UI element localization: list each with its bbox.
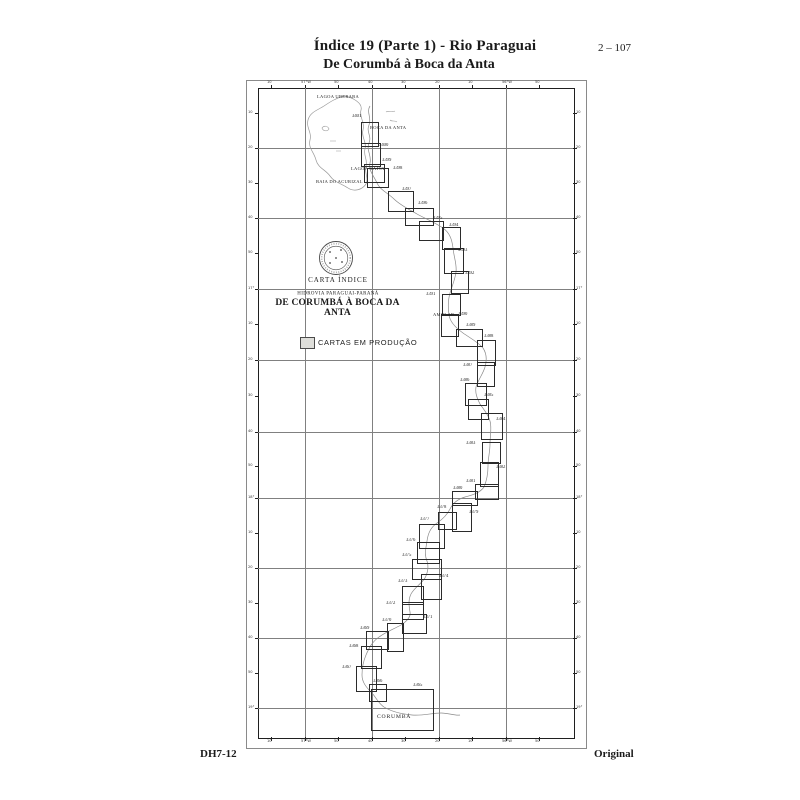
chart-number-3375: 3375 (402, 553, 411, 558)
lat-tickmark-left (255, 638, 259, 639)
lon-tickmark-top (338, 85, 339, 89)
lat-tick-label-left: 40 (248, 215, 253, 219)
lat-tick-label-right: 50 (576, 250, 581, 254)
lat-tickmark-left (255, 396, 259, 397)
chart-number-3373: 3373 (398, 579, 407, 584)
lat-tickmark-right (573, 360, 577, 361)
chart-number-3376: 3376 (406, 538, 415, 543)
lat-tick-label-left: 50 (248, 463, 253, 467)
lat-tickmark-right (573, 498, 577, 499)
lat-tickmark-left (255, 289, 259, 290)
chart-number-3384: 3384 (496, 417, 505, 422)
chart-number-3371: 3371 (423, 615, 432, 620)
lon-tickmark-top (372, 85, 373, 89)
chart-number-3369: 3369 (360, 626, 369, 631)
lat-tickmark-right (573, 396, 577, 397)
lat-tick-label-left: 17° (248, 286, 254, 290)
chart-number-3395: 3395 (433, 216, 442, 221)
lon-tick-label-top: 57°W (301, 80, 311, 84)
chart-number-3399: 3399 (382, 158, 391, 163)
map-index-subtitle1: HIDROVIA PARAGUAI-PARANÁ (290, 291, 387, 296)
lon-tickmark-bottom (372, 737, 373, 741)
chart-number-3383: 3383 (466, 441, 475, 446)
chart-number-3400: 3400 (379, 143, 388, 148)
chart-number-3367: 3367 (342, 665, 351, 670)
chart-number-3385: 3385 (484, 393, 493, 398)
place-label-boca-da-anta: BOCA DA ANTA (370, 126, 406, 131)
chart-number-3388: 3388 (484, 334, 493, 339)
lat-tick-label-left: 40 (248, 635, 253, 639)
graticule-parallel (258, 498, 573, 499)
lat-tickmark-right (573, 253, 577, 254)
chart-number-3397: 3397 (402, 187, 411, 192)
chart-number-3374: 3374 (439, 574, 448, 579)
chart-number-3401: 3401 (352, 114, 361, 119)
lon-tickmark-top (472, 85, 473, 89)
lat-tick-label-right: 50 (576, 670, 581, 674)
lat-tick-label-right: 30 (576, 600, 581, 604)
chart-box-3383 (482, 442, 501, 464)
graticule-meridian (506, 88, 507, 737)
chart-number-3394: 3394 (449, 223, 458, 228)
lat-tick-label-right: 18° (576, 495, 582, 499)
legend-production-swatch (300, 337, 315, 349)
lat-tick-label-left: 40 (248, 429, 253, 433)
lat-tickmark-right (573, 324, 577, 325)
lat-tick-label-left: 18° (248, 495, 254, 499)
lat-tick-label-right: 40 (576, 635, 581, 639)
lat-tickmark-left (255, 673, 259, 674)
lat-tick-label-left: 20 (248, 145, 253, 149)
place-label-corumba: CORUMBÁ (377, 714, 411, 720)
chart-number-3368: 3368 (349, 644, 358, 649)
lat-tick-label-right: 40 (576, 429, 581, 433)
chart-number-3389: 3389 (466, 323, 475, 328)
lon-tickmark-top (405, 85, 406, 89)
map-index-title: CARTA ÍNDICE (300, 276, 376, 284)
lat-tick-label-left: 20 (248, 565, 253, 569)
chart-number-3396: 3396 (418, 201, 427, 206)
lat-tickmark-right (573, 603, 577, 604)
lat-tick-label-left: 30 (248, 600, 253, 604)
lat-tickmark-left (255, 183, 259, 184)
lat-tickmark-left (255, 498, 259, 499)
chart-index-page: Índice 19 (Parte 1) - Rio Paraguai De Co… (0, 0, 800, 800)
lat-tick-label-right: 10 (576, 321, 581, 325)
lon-tickmark-bottom (439, 737, 440, 741)
lat-tickmark-left (255, 360, 259, 361)
footer-document-code: DH7-12 (200, 748, 237, 760)
place-label-amolar: AMOLAR (433, 313, 454, 318)
place-label-lagoa-uberaba: LAGOA UBERABA (317, 95, 359, 100)
lat-tickmark-right (573, 113, 577, 114)
chart-number-3386: 3386 (460, 378, 469, 383)
chart-number-3398: 3398 (393, 166, 402, 171)
chart-box-3381 (475, 484, 499, 500)
graticule-meridian (305, 88, 306, 737)
lat-tick-label-right: 30 (576, 180, 581, 184)
lon-tickmark-top (305, 85, 306, 89)
lon-tick-label-bottom: 56°W (502, 739, 512, 743)
lon-tick-label-bottom: 57°W (301, 739, 311, 743)
lat-tickmark-right (573, 432, 577, 433)
lon-tickmark-top (506, 85, 507, 89)
lat-tickmark-left (255, 466, 259, 467)
lat-tickmark-right (573, 183, 577, 184)
lat-tick-label-left: 50 (248, 670, 253, 674)
lat-tickmark-left (255, 113, 259, 114)
lat-tick-label-right: 40 (576, 215, 581, 219)
lat-tickmark-left (255, 253, 259, 254)
lat-tick-label-right: 50 (576, 463, 581, 467)
lat-tick-label-right: 20 (576, 357, 581, 361)
chart-box-3365 (371, 689, 434, 731)
chart-number-3392: 3392 (465, 271, 474, 276)
chart-box-3395 (419, 221, 444, 241)
graticule-parallel (258, 360, 573, 361)
graticule-meridian (439, 88, 440, 737)
lat-tick-label-left: 30 (248, 180, 253, 184)
graticule-parallel (258, 148, 573, 149)
lon-tickmark-top (271, 85, 272, 89)
lat-tickmark-right (573, 673, 577, 674)
page-subtitle: De Corumbá à Boca da Anta (259, 57, 559, 73)
lon-tickmark-top (439, 85, 440, 89)
lat-tickmark-left (255, 148, 259, 149)
page-number: 2 – 107 (598, 42, 631, 54)
lon-tickmark-top (539, 85, 540, 89)
lat-tickmark-right (573, 289, 577, 290)
lon-tickmark-bottom (305, 737, 306, 741)
place-label-lagoa-gaiva: LAGOA GAÍVA (351, 167, 385, 172)
chart-number-3380: 3380 (453, 486, 462, 491)
lat-tick-label-left: 30 (248, 393, 253, 397)
lat-tickmark-left (255, 218, 259, 219)
lat-tickmark-right (573, 533, 577, 534)
lon-tick-label-top: 56°W (502, 80, 512, 84)
lat-tick-label-left: 50 (248, 250, 253, 254)
chart-number-3387: 3387 (463, 363, 472, 368)
lat-tickmark-left (255, 324, 259, 325)
chart-number-3372: 3372 (386, 601, 395, 606)
map-index-subtitle2: DE CORUMBÁ À BOCA DA ANTA (266, 298, 409, 318)
lat-tick-label-right: 19° (576, 705, 582, 709)
lon-tickmark-bottom (506, 737, 507, 741)
lon-tickmark-bottom (271, 737, 272, 741)
chart-number-3379: 3379 (469, 510, 478, 515)
lat-tickmark-left (255, 708, 259, 709)
graticule-parallel (258, 432, 573, 433)
lat-tick-label-right: 20 (576, 565, 581, 569)
lat-tickmark-left (255, 533, 259, 534)
chart-number-3366: 3366 (373, 679, 382, 684)
lat-tick-label-right: 10 (576, 110, 581, 114)
lat-tick-label-right: 10 (576, 530, 581, 534)
legend-production-label: CARTAS EM PRODUÇÃO (318, 338, 417, 347)
lon-tickmark-bottom (405, 737, 406, 741)
chart-number-3365: 3365 (413, 683, 422, 688)
lat-tickmark-left (255, 568, 259, 569)
chart-number-3393: 3393 (458, 248, 467, 253)
lat-tick-label-left: 10 (248, 110, 253, 114)
lat-tick-label-right: 17° (576, 286, 582, 290)
lat-tickmark-right (573, 708, 577, 709)
lat-tickmark-right (573, 638, 577, 639)
lon-tickmark-bottom (338, 737, 339, 741)
lat-tickmark-right (573, 568, 577, 569)
lat-tick-label-right: 30 (576, 393, 581, 397)
chart-number-3381: 3381 (466, 479, 475, 484)
lat-tick-label-left: 10 (248, 530, 253, 534)
chart-number-3370: 3370 (382, 618, 391, 623)
lat-tickmark-right (573, 148, 577, 149)
lat-tickmark-right (573, 466, 577, 467)
footer-edition-label: Original (594, 748, 634, 760)
lat-tick-label-right: 20 (576, 145, 581, 149)
lon-tickmark-bottom (472, 737, 473, 741)
chart-box-3394 (442, 227, 461, 250)
graticule-parallel (258, 289, 573, 290)
page-title: Índice 19 (Parte 1) - Rio Paraguai (275, 38, 575, 55)
chart-number-3390: 3390 (458, 312, 467, 317)
lat-tickmark-left (255, 432, 259, 433)
lat-tick-label-left: 19° (248, 705, 254, 709)
lon-tickmark-bottom (539, 737, 540, 741)
chart-number-3382: 3382 (496, 465, 505, 470)
lat-tick-label-left: 20 (248, 357, 253, 361)
lat-tickmark-right (573, 218, 577, 219)
chart-box-3370 (387, 623, 404, 652)
chart-number-3378: 3378 (437, 505, 446, 510)
chart-number-3391: 3391 (426, 292, 435, 297)
chart-number-3377: 3377 (420, 517, 429, 522)
graticule-parallel (258, 638, 573, 639)
lat-tick-label-left: 10 (248, 321, 253, 325)
lat-tickmark-left (255, 603, 259, 604)
place-label-baia-do-acurizal: BAIA DO ACURIZAL (316, 180, 363, 185)
